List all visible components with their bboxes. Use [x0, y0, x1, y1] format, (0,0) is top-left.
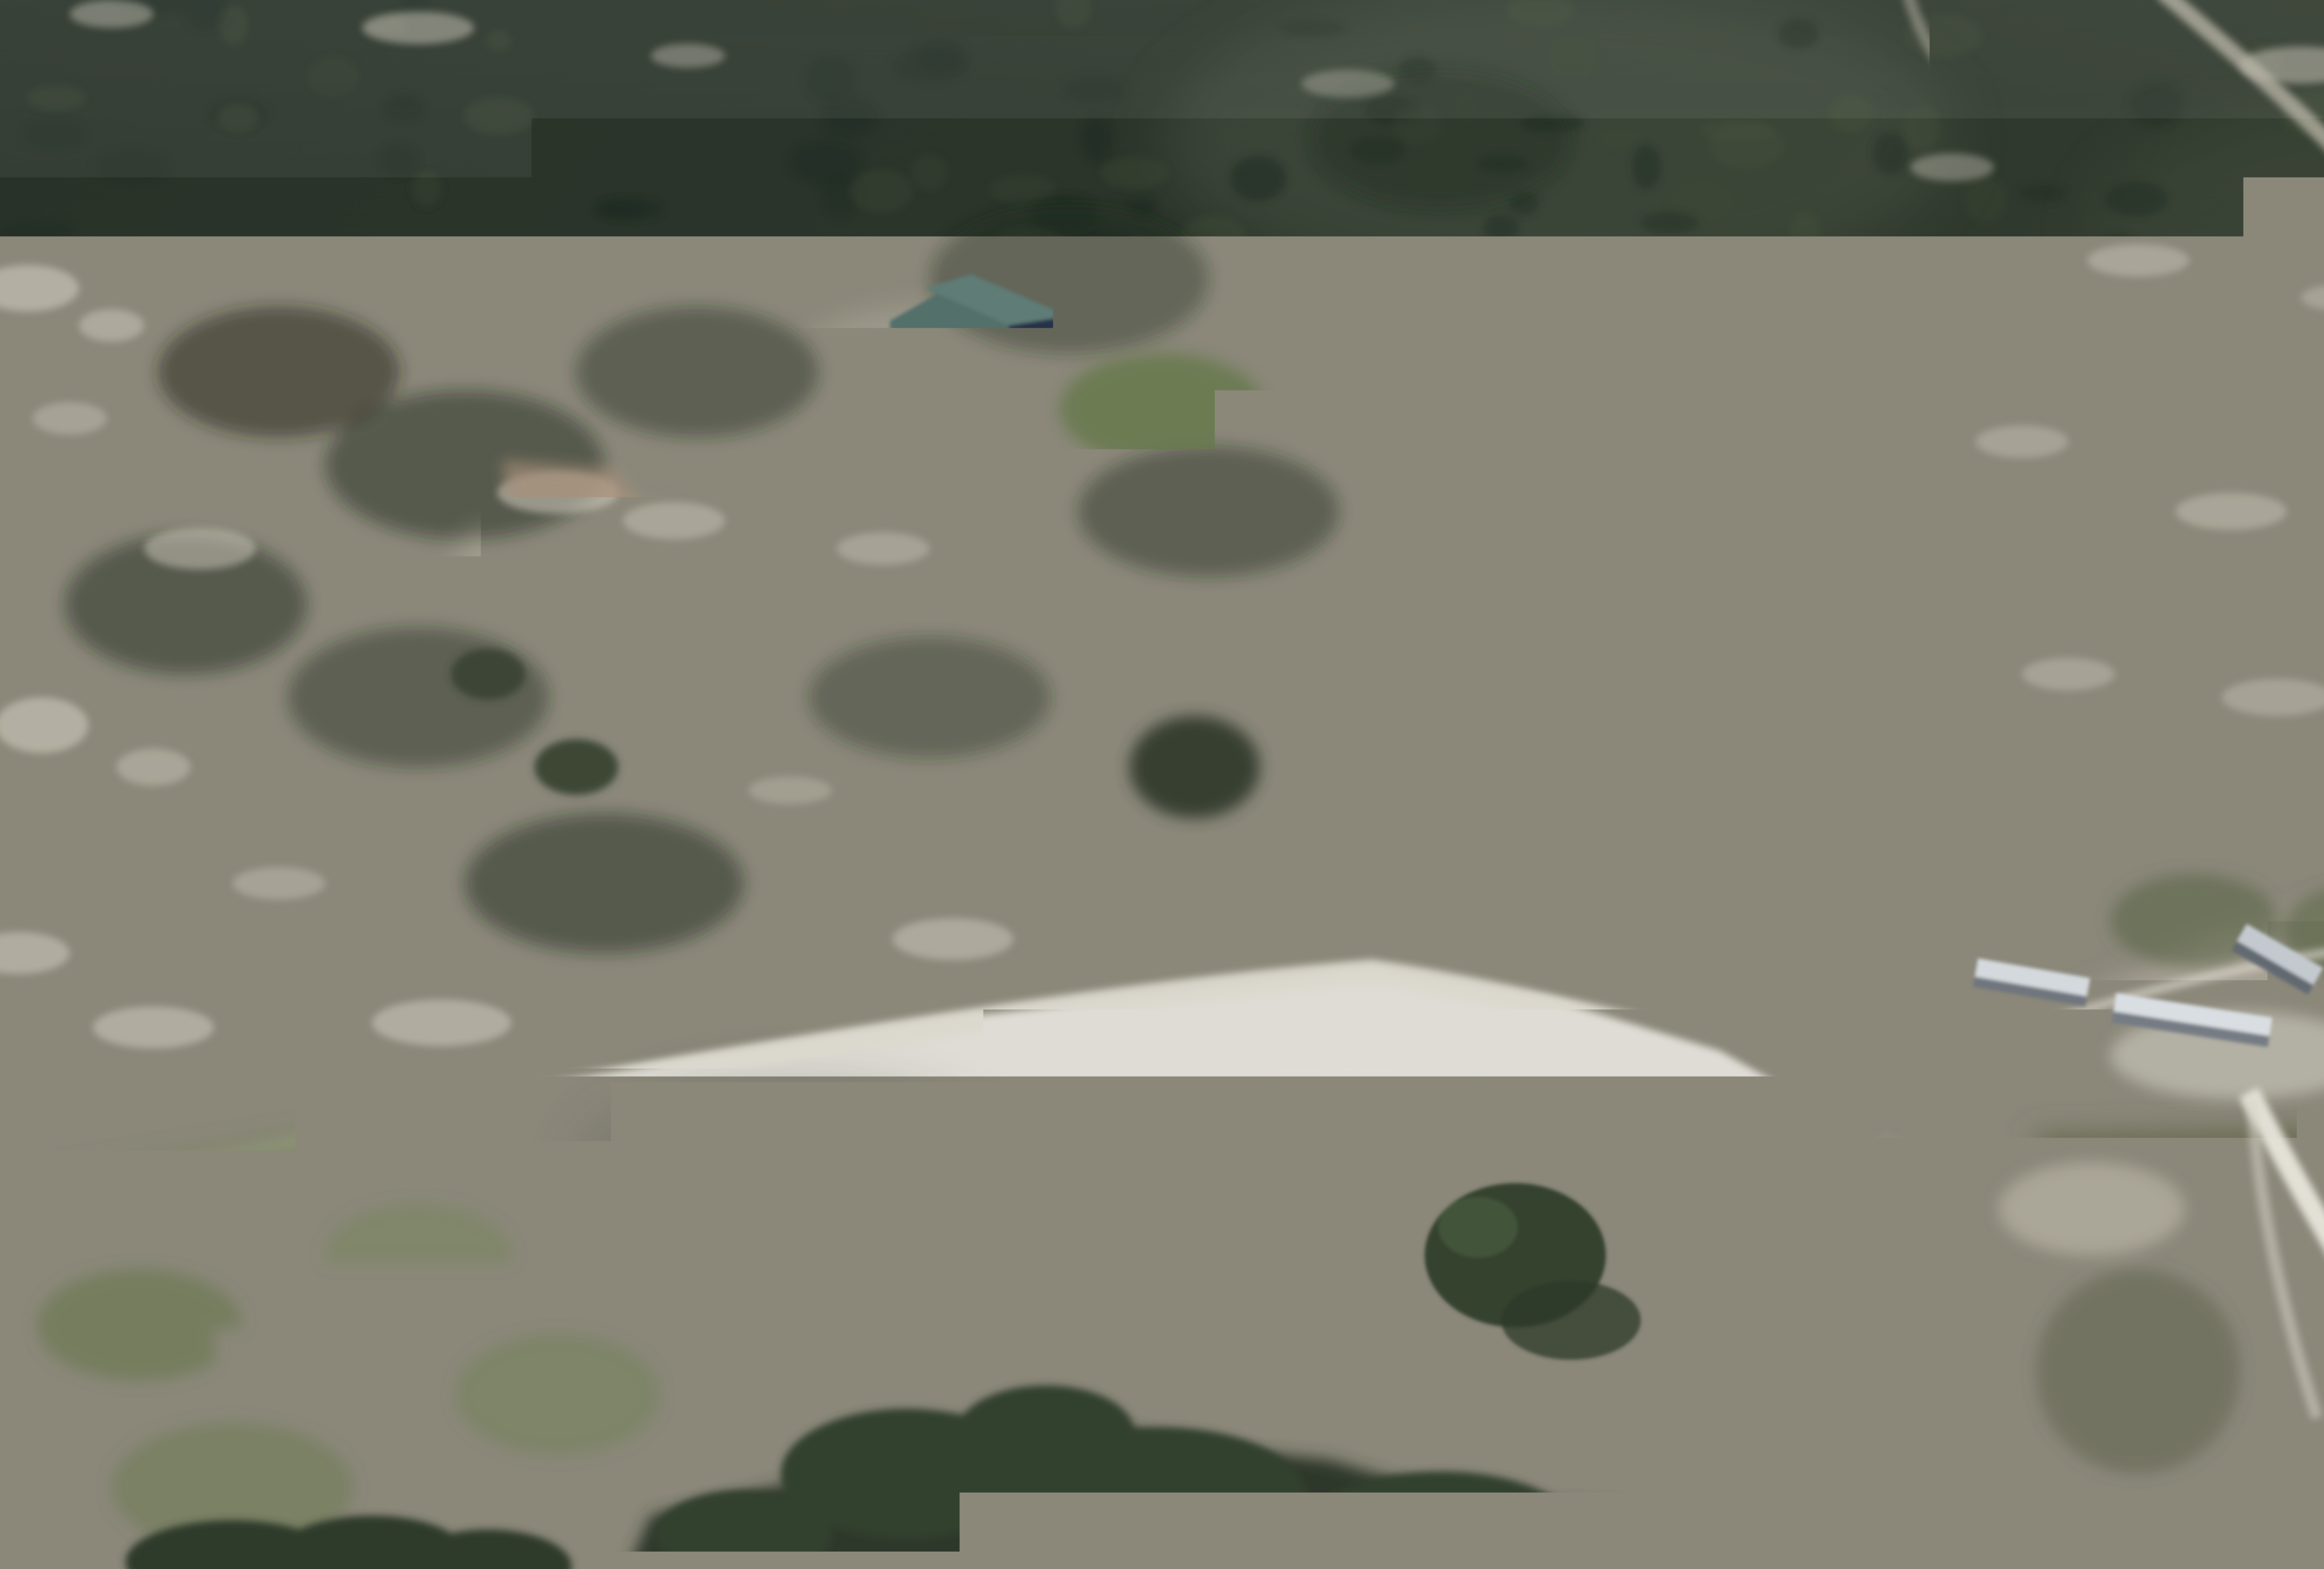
svg-text:Access Road To: Access Road To [775, 363, 1367, 470]
svg-text:The Property: The Property [830, 456, 1312, 563]
